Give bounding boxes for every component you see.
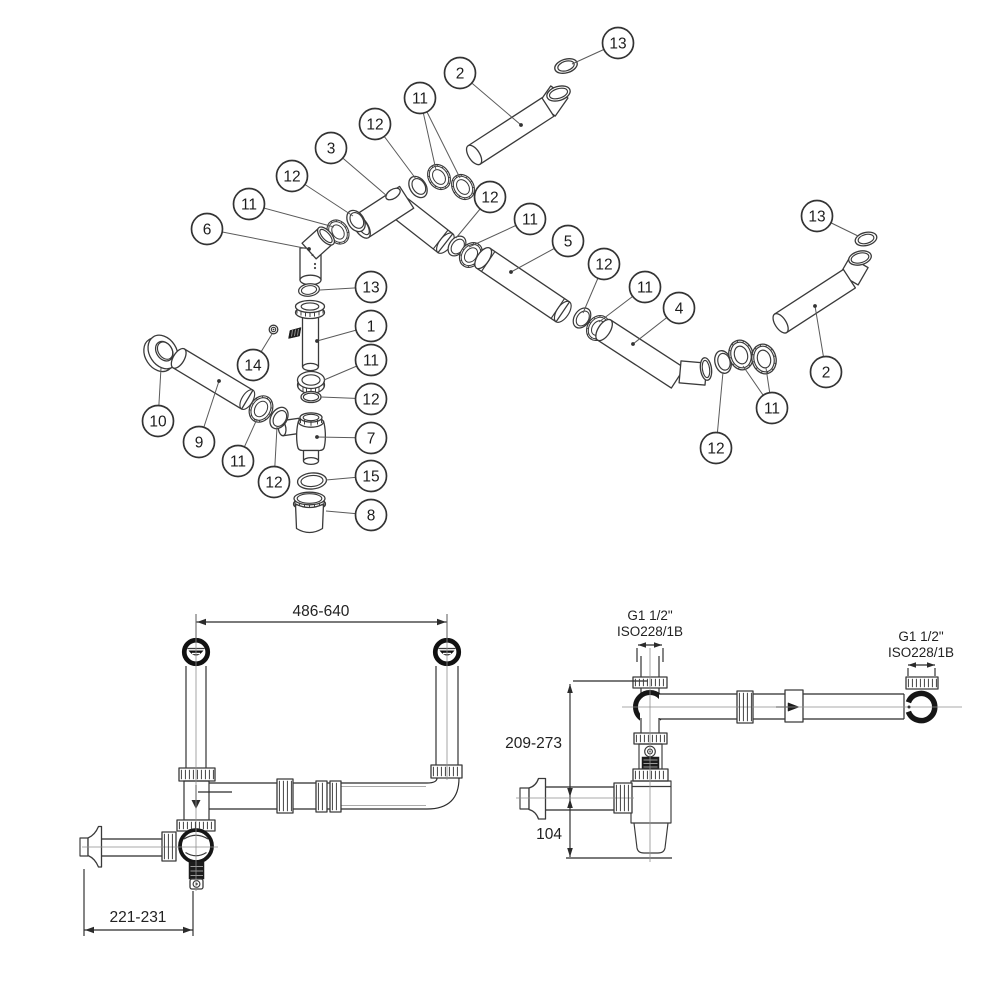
inlet-stub — [520, 788, 529, 809]
callout-number: 12 — [481, 189, 498, 206]
inlet-flange — [529, 779, 546, 820]
thread-right-label: G1 1/2" — [898, 629, 944, 644]
leader-dot — [315, 435, 319, 439]
part-nut-11-d — [298, 372, 325, 394]
callout-number: 2 — [456, 65, 465, 82]
leader-dot — [315, 339, 319, 343]
thread-top-iso-label: ISO228/1B — [617, 624, 683, 639]
callout-number: 11 — [522, 211, 538, 228]
leader-dot — [307, 247, 311, 251]
part-pipe-4 — [593, 317, 713, 388]
dim-bottom-label: 104 — [536, 826, 562, 843]
part-ring-13-right — [854, 230, 878, 248]
callout-11: 11 — [223, 419, 258, 477]
callout-12: 12 — [259, 427, 290, 498]
part-pipe-2-right — [770, 249, 873, 336]
side-view-drawing: G1 1/2" ISO228/1B G1 1/2" ISO228/1B — [505, 608, 962, 862]
part-screw-14 — [269, 325, 301, 338]
callout-number: 11 — [764, 400, 780, 417]
part-nut-11-i — [749, 341, 780, 376]
trap-cup-side — [634, 823, 668, 853]
callout-number: 3 — [327, 140, 336, 157]
callout-number: 7 — [367, 430, 376, 447]
callout-1: 1 — [315, 311, 386, 343]
callout-11: 11 — [324, 345, 387, 381]
part-pipe-2-top — [463, 83, 572, 167]
callout-number: 11 — [637, 279, 653, 296]
right-drain-nut — [906, 677, 938, 689]
part-gasket-15 — [297, 472, 327, 490]
part-washer-12-a — [405, 173, 431, 201]
callout-2: 2 — [811, 304, 842, 387]
callout-number: 13 — [808, 208, 825, 225]
stack-nut-1 — [634, 733, 667, 744]
callout-number: 11 — [363, 352, 379, 369]
callout-number: 15 — [362, 468, 379, 485]
callout-5: 5 — [509, 226, 583, 274]
callout-number: 4 — [675, 300, 684, 317]
callout-9: 9 — [184, 379, 221, 457]
callout-number: 12 — [362, 391, 379, 408]
callout-15: 15 — [326, 461, 387, 492]
plumbing-diagram-canvas: 486-640 — [0, 0, 1000, 1000]
part-nut-11-a — [423, 160, 455, 194]
callout-12: 12 — [277, 161, 354, 217]
elbow-right — [427, 778, 459, 809]
dim-width-label: 486-640 — [293, 603, 350, 620]
callout-13: 13 — [802, 201, 859, 237]
thread-top-label: G1 1/2" — [627, 608, 673, 623]
callout-11: 11 — [405, 83, 461, 179]
callout-number: 10 — [149, 413, 167, 430]
callout-number: 12 — [283, 168, 300, 185]
callout-number: 5 — [564, 233, 573, 250]
dim-height-label: 209-273 — [505, 735, 562, 752]
callout-number: 11 — [412, 90, 428, 107]
dim-offset-label: 221-231 — [110, 909, 167, 926]
callout-12: 12 — [583, 249, 620, 314]
telescopic-ring-b — [330, 781, 341, 812]
callout-number: 6 — [203, 221, 212, 238]
callout-8: 8 — [326, 500, 387, 531]
callout-11: 11 — [234, 189, 335, 228]
telescopic-ring-a — [316, 781, 327, 812]
part-cup-8 — [294, 492, 326, 532]
callout-number: 11 — [241, 196, 257, 213]
part-ring-13-top — [553, 56, 579, 76]
callout-12: 12 — [321, 384, 387, 415]
callout-number: 12 — [595, 256, 612, 273]
leader-dot — [217, 379, 221, 383]
thread-right-iso-label: ISO228/1B — [888, 645, 954, 660]
diagram-page: 486-640 — [0, 0, 1000, 1000]
callout-number: 9 — [195, 434, 204, 451]
callout-number: 1 — [367, 318, 376, 335]
front-view-drawing: 486-640 — [80, 603, 462, 936]
part-ring-13-mid — [298, 282, 320, 297]
leader-dot — [813, 304, 817, 308]
callout-10: 10 — [143, 368, 174, 437]
callout-12: 12 — [360, 109, 417, 180]
callout-2: 2 — [445, 58, 523, 127]
callout-number: 13 — [362, 279, 379, 296]
callout-number: 2 — [822, 364, 831, 381]
callout-number: 11 — [230, 453, 246, 470]
trap-body-side — [631, 781, 671, 823]
stack-nut-2 — [633, 769, 668, 781]
part-washer-12-c — [301, 392, 321, 403]
leader-dot — [631, 342, 635, 346]
callout-number: 12 — [366, 116, 383, 133]
outlet-knurl — [189, 862, 204, 879]
callout-13: 13 — [320, 272, 387, 303]
callout-13: 13 — [572, 28, 634, 65]
callout-12: 12 — [701, 372, 732, 464]
callout-number: 8 — [367, 507, 376, 524]
callout-14: 14 — [238, 334, 273, 381]
part-tailpipe-1 — [296, 301, 325, 371]
leader-dot — [509, 270, 513, 274]
callout-number: 14 — [244, 357, 262, 374]
leader-dot — [519, 123, 523, 127]
callout-number: 13 — [609, 35, 626, 52]
part-pipe-5 — [472, 245, 575, 325]
callout-number: 12 — [707, 440, 724, 457]
callout-number: 12 — [265, 474, 282, 491]
callout-3: 3 — [316, 133, 388, 197]
callout-11: 11 — [743, 366, 788, 424]
